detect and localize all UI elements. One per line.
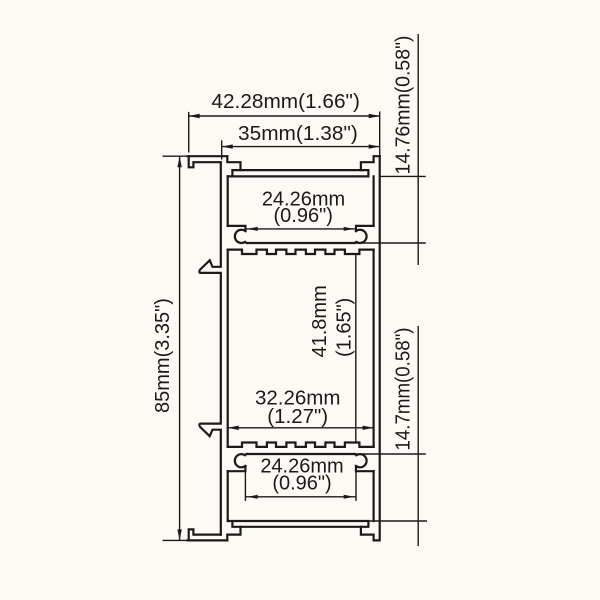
svg-text:42.28mm(1.66"): 42.28mm(1.66") (211, 90, 360, 113)
svg-text:85mm(3.35"): 85mm(3.35") (152, 298, 174, 413)
svg-text:(1.65"): (1.65") (334, 298, 356, 357)
svg-text:(0.96"): (0.96") (274, 205, 333, 227)
svg-text:41.8mm: 41.8mm (309, 285, 331, 357)
svg-text:14.7mm(0.58"): 14.7mm(0.58") (393, 328, 415, 451)
svg-text:(0.96"): (0.96") (272, 473, 331, 495)
svg-text:(1.27"): (1.27") (267, 405, 328, 428)
svg-text:35mm(1.38"): 35mm(1.38") (238, 122, 358, 145)
svg-text:14.76mm(0.58"): 14.76mm(0.58") (393, 36, 415, 175)
